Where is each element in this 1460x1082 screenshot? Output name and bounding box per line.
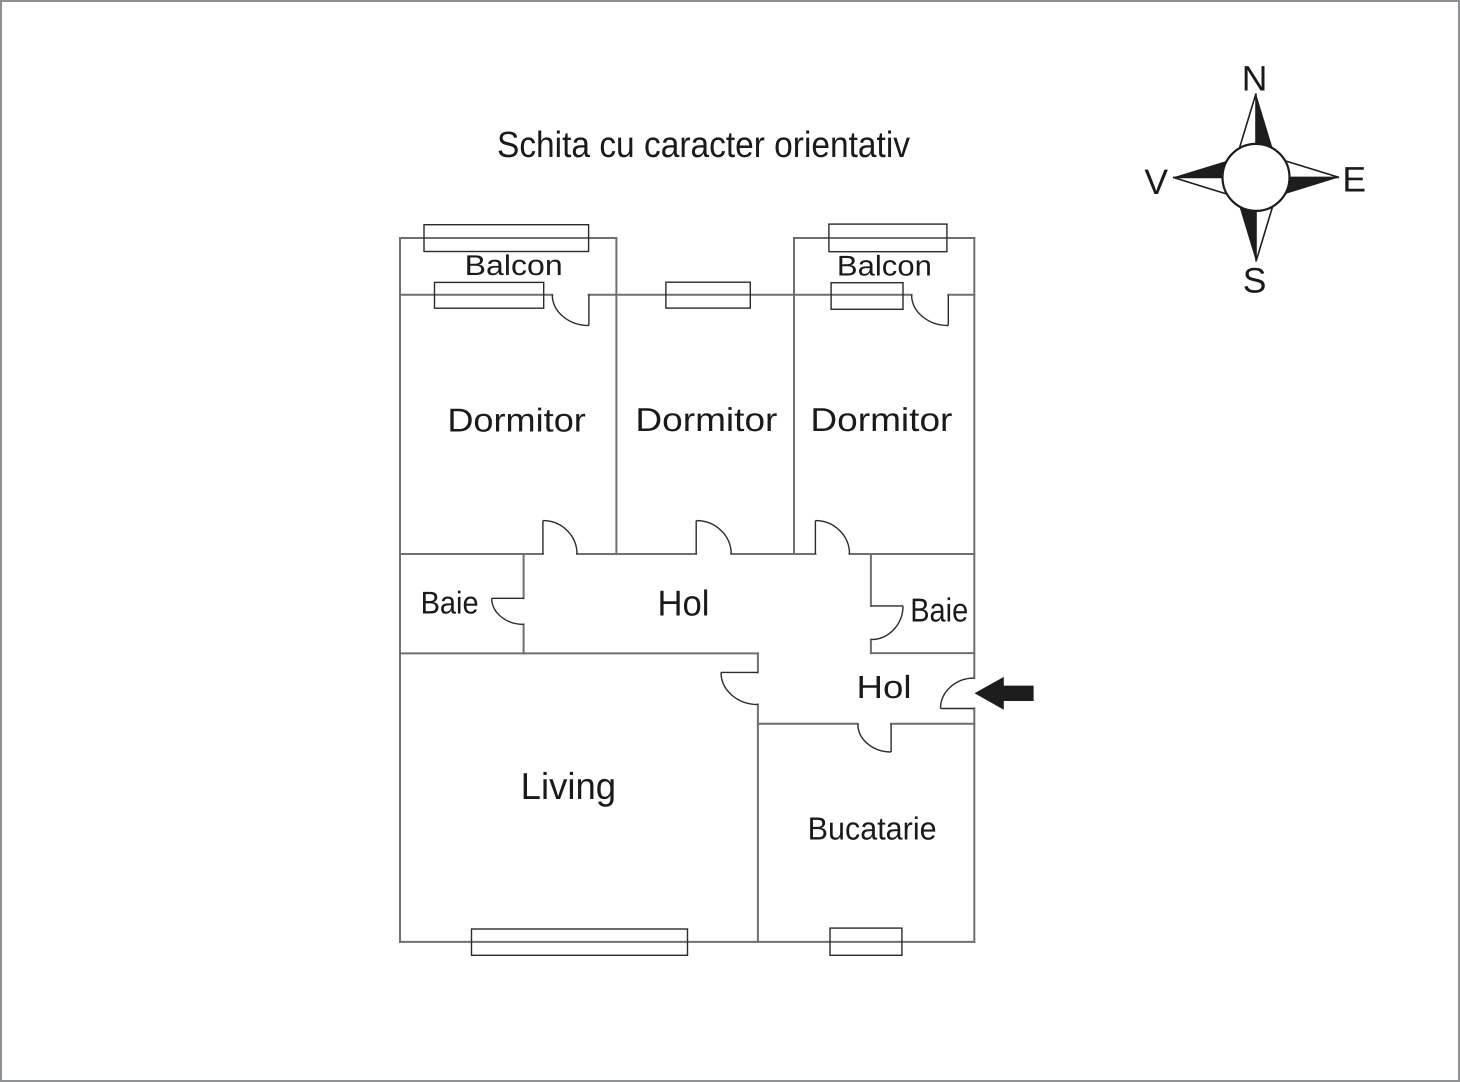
svg-text:Living: Living <box>521 765 617 807</box>
svg-text:Balcon: Balcon <box>465 250 563 282</box>
svg-text:Dormitor: Dormitor <box>635 401 777 438</box>
svg-text:Hol: Hol <box>658 582 710 623</box>
svg-text:S: S <box>1243 260 1267 300</box>
svg-text:N: N <box>1242 59 1268 99</box>
svg-text:Dormitor: Dormitor <box>447 401 586 438</box>
svg-text:Baie: Baie <box>421 584 479 620</box>
svg-text:Balcon: Balcon <box>837 250 932 282</box>
svg-text:V: V <box>1144 162 1168 202</box>
svg-text:E: E <box>1342 159 1366 199</box>
svg-text:Bucatarie: Bucatarie <box>808 810 937 846</box>
svg-text:Baie: Baie <box>910 592 968 629</box>
svg-text:Hol: Hol <box>857 669 912 705</box>
svg-text:Dormitor: Dormitor <box>810 401 952 438</box>
svg-text:Schita cu caracter orientativ: Schita cu caracter orientativ <box>497 124 911 165</box>
